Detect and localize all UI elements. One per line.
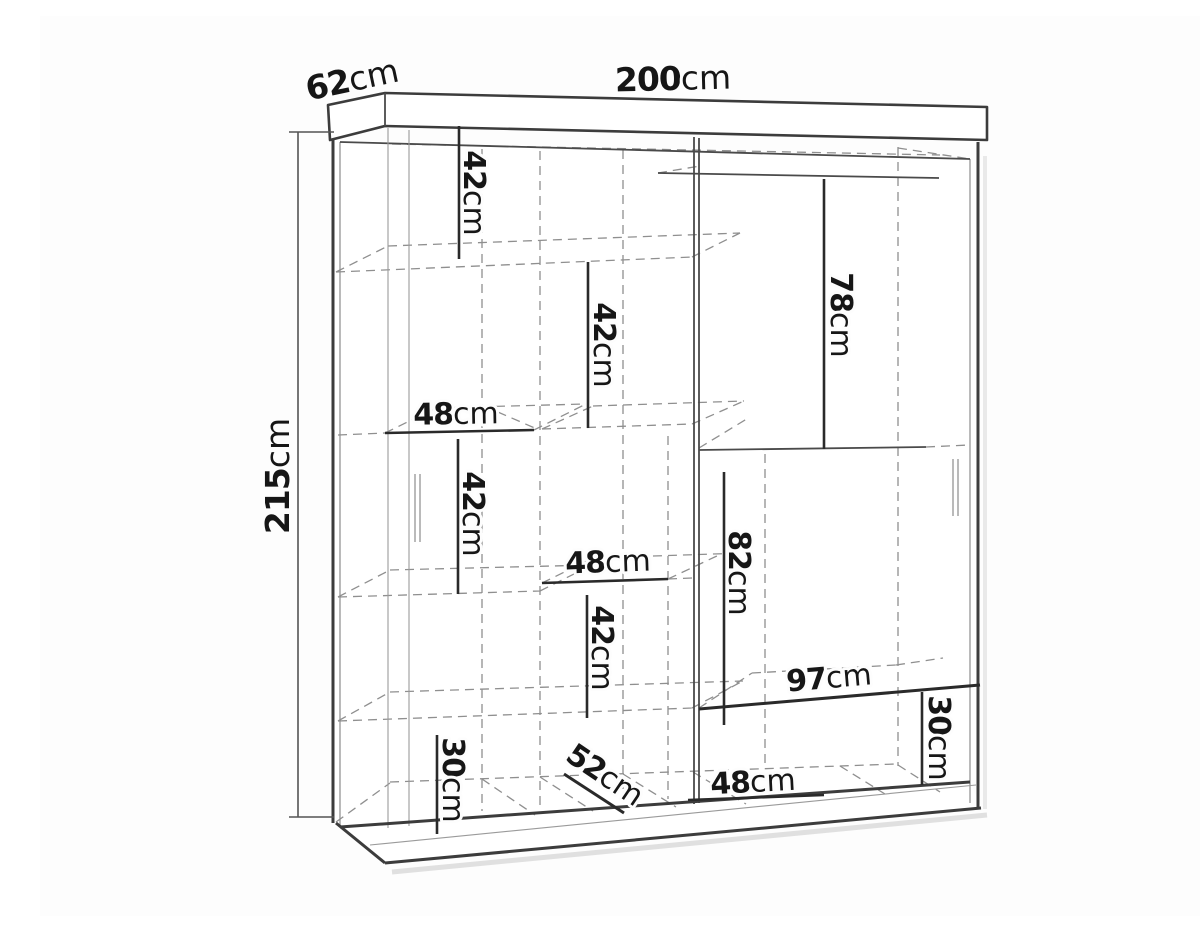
dim-label-i1-top-left-42: 42cm [457,150,492,235]
dim-label-i5-mid-left-42: 42cm [456,471,491,556]
dim-label-i11-bottom-left-30: 30cm [436,737,471,822]
dim-label-height: 215cm [258,418,297,534]
dim-label-i6-mid-shelf-48: 48cm [565,543,652,581]
front-face [333,140,970,827]
top-panel [328,93,987,140]
dim-label-i13-bottom-48: 48cm [709,762,796,801]
dim-label-i7-right-mid-82: 82cm [722,530,757,615]
dim-label-i4-left-shelf-48: 48cm [413,396,499,432]
dim-label-i8-lower-mid-42: 42cm [585,605,620,690]
wardrobe-dimension-diagram: 200cm 62cm 215cm 42cm 42cm 78cm 48cm 42c… [40,16,1200,916]
dim-label-i2-upper-mid-42: 42cm [587,302,622,387]
dim-label-i10-bottom-right-30: 30cm [922,695,957,780]
dim-label-i9-bottom-right-97: 97cm [785,657,873,699]
dim-label-width: 200cm [614,57,731,99]
dim-label-i3-right-78: 78cm [824,272,859,357]
wardrobe-body-fill [333,140,981,863]
diagram-canvas: 200cm 62cm 215cm 42cm 42cm 78cm 48cm 42c… [40,16,1200,916]
